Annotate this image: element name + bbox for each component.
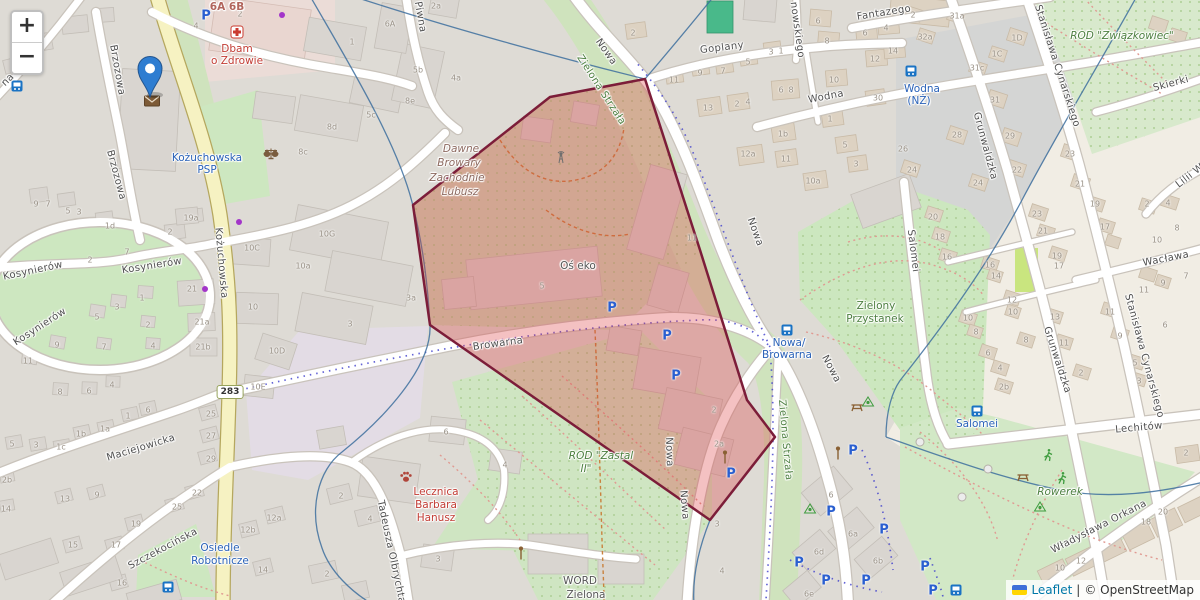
building xyxy=(317,426,347,449)
building xyxy=(737,144,764,165)
building xyxy=(106,376,120,387)
road xyxy=(796,0,798,60)
attribution-bar: Leaflet | © OpenStreetMap xyxy=(1006,580,1200,600)
road-ref-badge: 283 xyxy=(217,385,244,399)
building xyxy=(809,9,831,27)
building xyxy=(803,170,828,190)
building xyxy=(775,149,798,168)
building xyxy=(190,338,217,356)
building xyxy=(727,93,750,112)
building xyxy=(697,96,722,116)
leaflet-link[interactable]: Leaflet xyxy=(1031,583,1072,597)
building xyxy=(89,304,106,318)
building xyxy=(53,382,69,395)
building xyxy=(0,499,15,512)
zoom-control: + − xyxy=(10,10,44,75)
building xyxy=(235,292,278,324)
building xyxy=(110,294,126,308)
building xyxy=(625,22,647,40)
building xyxy=(146,338,161,350)
building xyxy=(49,335,66,349)
map-marker-pin[interactable] xyxy=(133,53,167,99)
building xyxy=(847,155,868,172)
green-roof-building xyxy=(707,1,733,33)
building xyxy=(29,187,49,203)
building xyxy=(835,135,858,154)
osm-link[interactable]: © OpenStreetMap xyxy=(1084,583,1194,597)
building xyxy=(82,382,97,395)
building xyxy=(29,437,47,452)
building xyxy=(57,192,76,207)
basemap-tiles xyxy=(0,0,1200,600)
building xyxy=(5,435,23,450)
ukraine-flag-icon xyxy=(1012,585,1027,595)
building xyxy=(252,91,295,123)
building xyxy=(1175,444,1200,463)
map-canvas[interactable]: 1246A2a5b4a8e5c8d8c211975316864121410681… xyxy=(0,0,1200,600)
building xyxy=(138,285,154,298)
attribution-separator: | xyxy=(1076,583,1080,597)
building xyxy=(175,207,199,225)
zoom-out-button[interactable]: − xyxy=(12,43,42,73)
building xyxy=(743,0,777,22)
building xyxy=(771,79,800,100)
zoom-in-button[interactable]: + xyxy=(12,12,42,43)
building xyxy=(140,315,155,327)
building xyxy=(96,337,111,350)
building xyxy=(825,69,847,87)
